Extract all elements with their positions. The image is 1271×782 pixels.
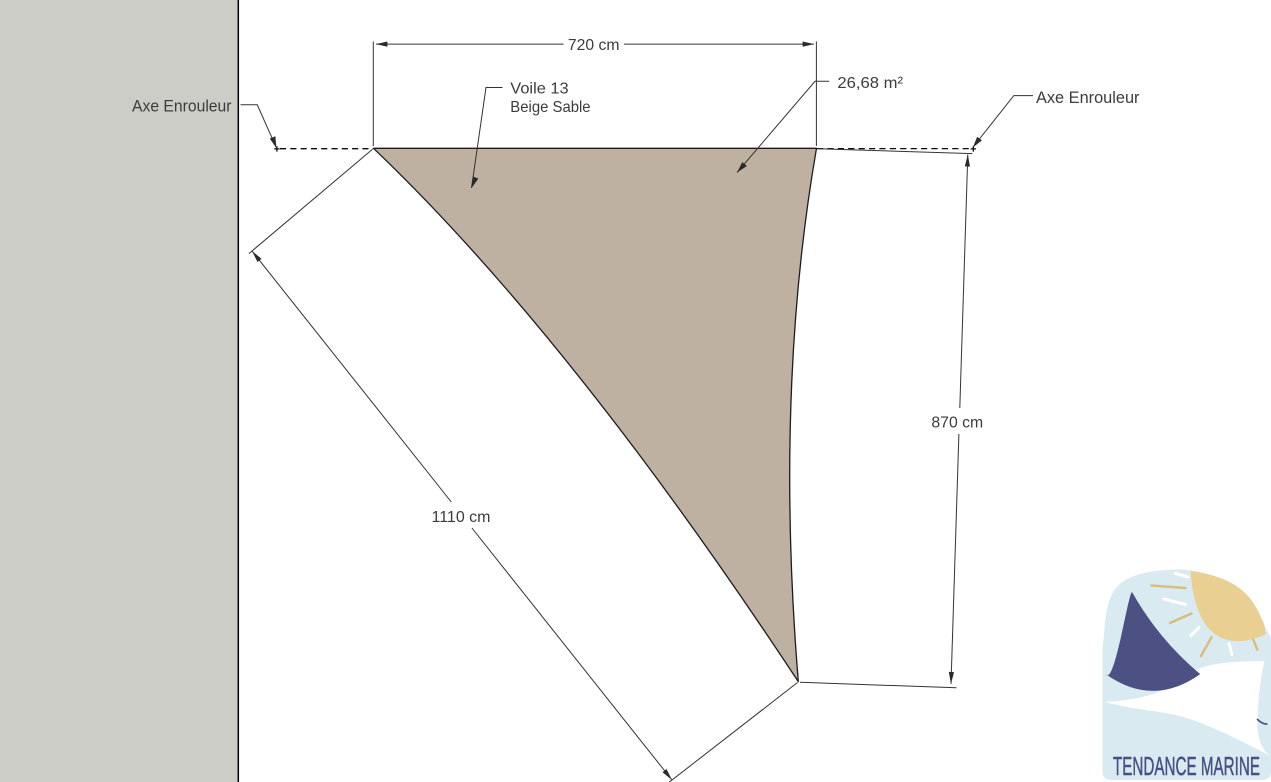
svg-text:TENDANCE MARINE: TENDANCE MARINE — [1113, 753, 1260, 781]
svg-text:26,68 m²: 26,68 m² — [837, 75, 903, 92]
svg-text:Axe Enrouleur: Axe Enrouleur — [132, 97, 232, 115]
svg-text:Beige Sable: Beige Sable — [510, 99, 590, 116]
svg-text:Voile 13: Voile 13 — [510, 81, 568, 98]
svg-text:720 cm: 720 cm — [568, 37, 620, 54]
svg-text:1110 cm: 1110 cm — [432, 509, 491, 526]
svg-text:Axe Enrouleur: Axe Enrouleur — [1036, 89, 1140, 107]
svg-text:870 cm: 870 cm — [931, 415, 983, 432]
